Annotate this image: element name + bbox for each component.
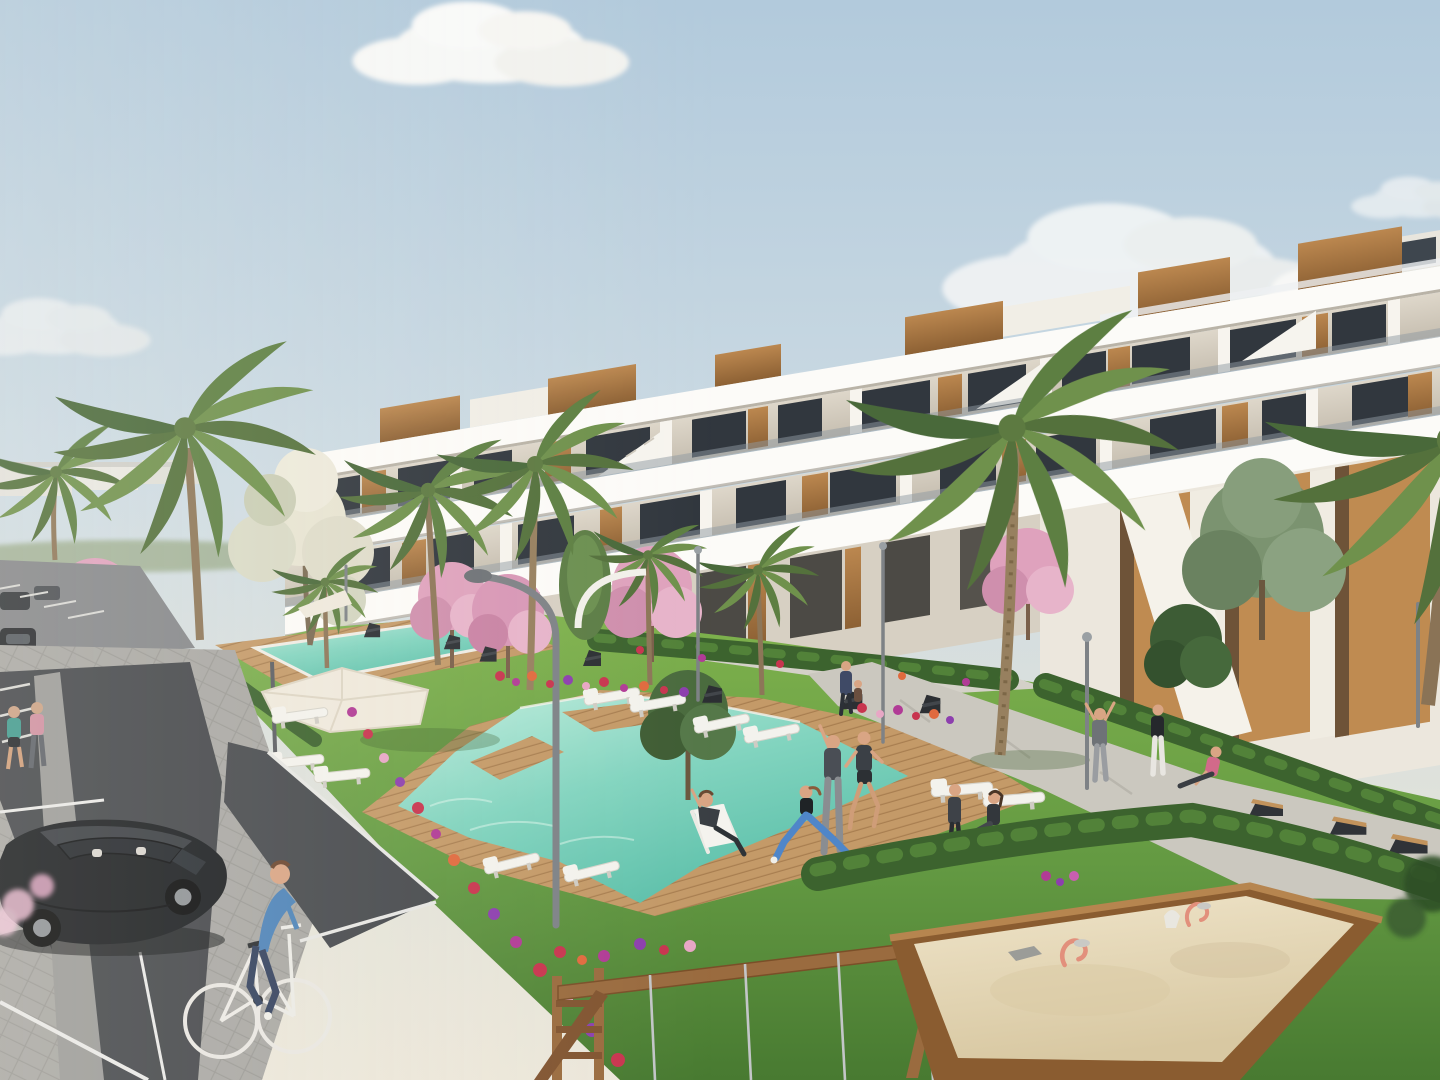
scene-canvas	[0, 0, 1440, 1080]
rendered-photo	[0, 0, 1440, 1080]
light-haze	[0, 0, 1440, 1080]
